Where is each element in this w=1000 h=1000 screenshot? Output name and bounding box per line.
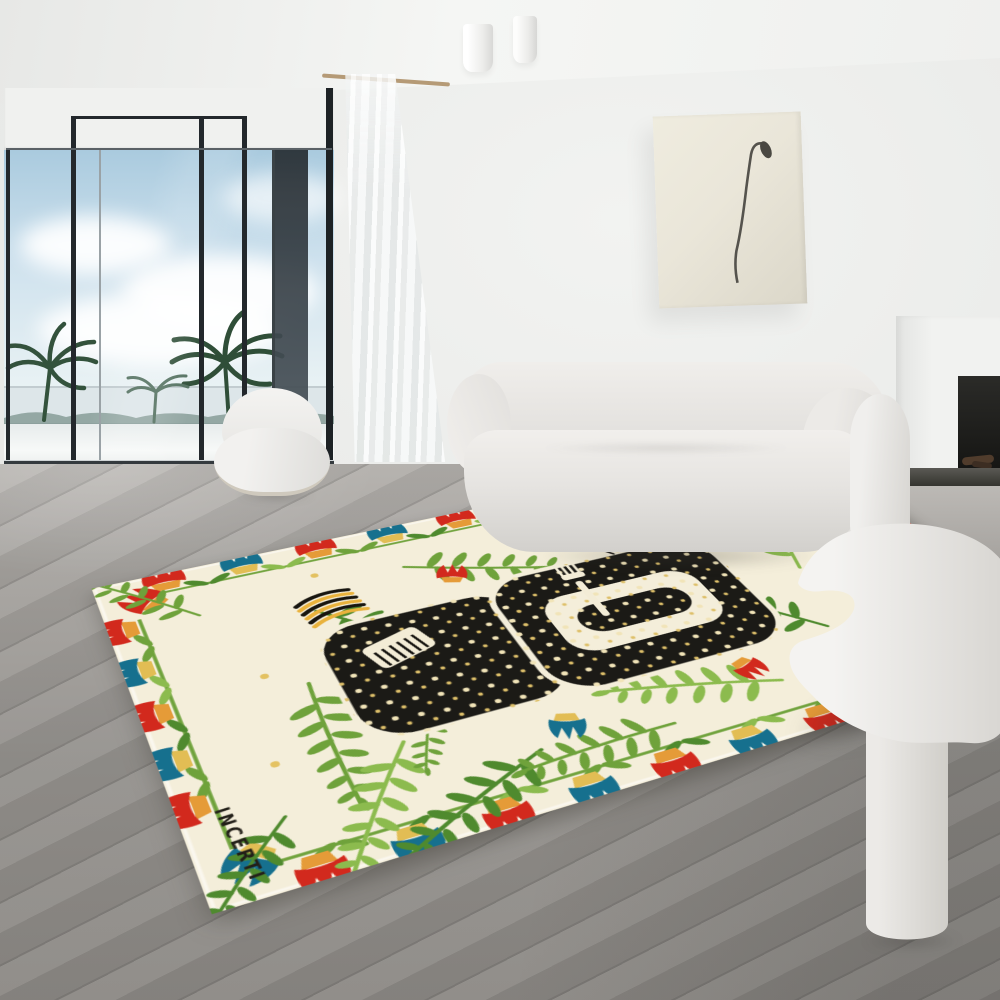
- ceiling-light: [463, 24, 493, 72]
- stool-leg: [866, 710, 948, 940]
- ceiling-light: [513, 16, 537, 63]
- stool-seat: [790, 524, 1000, 744]
- sofa-cushion-seam: [486, 440, 846, 456]
- art-line-drawing: [653, 111, 808, 308]
- pouf-seat: [214, 428, 330, 496]
- living-room-photo: INCERTI: [0, 0, 1000, 1000]
- door-lintel: [4, 88, 334, 150]
- sculptural-stool: [770, 505, 1000, 975]
- wall-art-canvas: [653, 111, 808, 308]
